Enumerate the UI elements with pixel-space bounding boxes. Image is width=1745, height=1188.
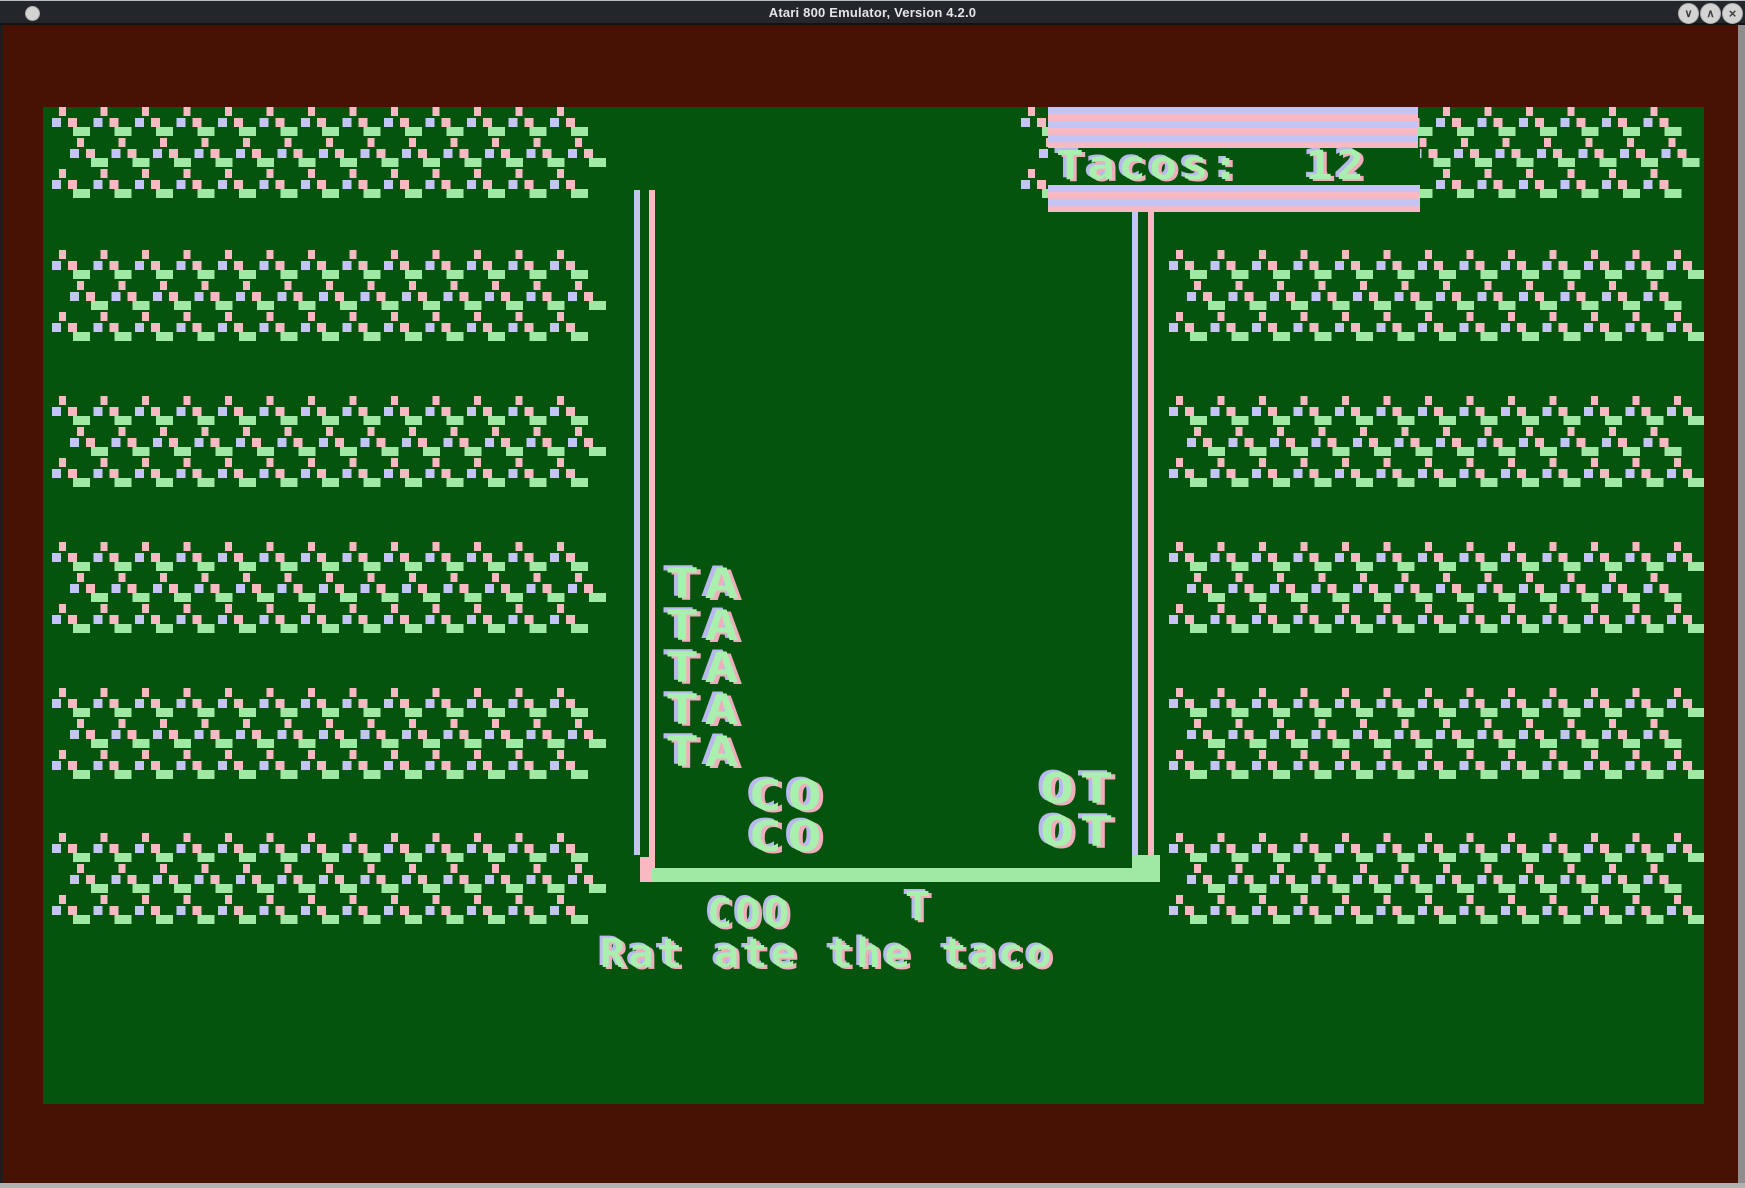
pattern-square	[1185, 699, 1194, 708]
pattern-square	[1203, 584, 1212, 593]
falling-letters: COO	[707, 893, 792, 935]
pattern-square	[1037, 180, 1046, 189]
pattern-square	[70, 292, 79, 301]
pattern-square	[73, 127, 90, 136]
pattern-square	[1176, 833, 1183, 842]
pattern-square	[1190, 562, 1207, 571]
emulator-window: Atari 800 Emulator, Version 4.2.0 ∨ ∧ × …	[0, 0, 1745, 1188]
pattern-square	[1021, 118, 1030, 127]
score-stripe-bottom	[1048, 185, 1420, 212]
piece-ta-2: TA	[665, 607, 744, 645]
pattern-square	[59, 458, 66, 467]
pattern-square	[1169, 407, 1178, 416]
pattern-square	[1176, 396, 1183, 405]
pattern-square	[1176, 250, 1183, 259]
pattern-square	[59, 250, 66, 259]
pattern-square	[70, 149, 79, 158]
pattern-square	[52, 844, 61, 853]
pattern-square	[1169, 761, 1178, 770]
pattern-square	[1185, 323, 1194, 332]
pattern-square	[1176, 895, 1183, 904]
pattern-square	[52, 615, 61, 624]
pattern-square	[1169, 906, 1178, 915]
piece-co-1: CO	[748, 777, 827, 815]
pattern-square	[86, 149, 95, 158]
pattern-square	[1169, 615, 1178, 624]
minimize-button[interactable]: ∨	[1678, 3, 1699, 24]
piece-ta-5: TA	[665, 733, 744, 771]
piece-ta-4: TA	[665, 691, 744, 729]
pattern-square	[52, 906, 61, 915]
pattern-square	[73, 624, 90, 633]
pattern-square	[70, 875, 79, 884]
pattern-square	[73, 270, 90, 279]
playfield-wall-right-lavender	[1132, 190, 1138, 855]
pattern-square	[73, 708, 90, 717]
pattern-square	[1185, 761, 1194, 770]
pattern-square	[52, 553, 61, 562]
pattern-square	[1203, 292, 1212, 301]
pattern-square	[91, 301, 108, 310]
pattern-square	[68, 615, 77, 624]
pattern-square	[1190, 708, 1207, 717]
pattern-square	[1176, 750, 1183, 759]
emulator-screen[interactable]: Tacos: 12 TA TA TA TA TA CO CO OT OT COO…	[43, 107, 1704, 1104]
window-edge-left	[0, 25, 3, 1188]
pattern-square	[1169, 323, 1178, 332]
pattern-square	[59, 604, 66, 613]
pattern-square	[52, 323, 61, 332]
window-title: Atari 800 Emulator, Version 4.2.0	[0, 5, 1745, 20]
pattern-square	[77, 427, 84, 436]
pattern-square	[68, 323, 77, 332]
pattern-square	[1039, 149, 1048, 158]
falling-single-letter: T	[905, 886, 933, 928]
pattern-square	[91, 593, 108, 602]
pattern-square	[68, 844, 77, 853]
pattern-square	[1208, 884, 1225, 893]
pattern-square	[59, 833, 66, 842]
score-row: Tacos: 12	[1048, 148, 1420, 185]
piece-ta-3: TA	[665, 649, 744, 687]
pattern-square	[52, 699, 61, 708]
pattern-square	[91, 158, 108, 167]
pattern-square	[1185, 469, 1194, 478]
pattern-square	[1208, 593, 1225, 602]
pattern-square	[1187, 730, 1196, 739]
pattern-square	[73, 416, 90, 425]
pattern-square	[73, 332, 90, 341]
pattern-square	[1208, 301, 1225, 310]
pattern-square	[1190, 416, 1207, 425]
piece-ta-1: TA	[665, 565, 744, 603]
playfield-wall-left-lavender	[634, 190, 640, 855]
pattern-square	[68, 469, 77, 478]
pattern-square	[73, 853, 90, 862]
piece-ot-2: OT	[1040, 813, 1119, 851]
pattern-square	[77, 281, 84, 290]
pattern-square	[68, 699, 77, 708]
pattern-square	[73, 189, 90, 198]
pattern-square	[1169, 469, 1178, 478]
pattern-square	[68, 407, 77, 416]
playfield-floor-nub	[640, 857, 652, 882]
pattern-square	[91, 447, 108, 456]
pattern-square	[86, 730, 95, 739]
pattern-square	[52, 761, 61, 770]
playfield-wall-left-pink	[649, 190, 655, 868]
pattern-square	[1187, 438, 1196, 447]
playfield-floor	[650, 868, 1160, 882]
pattern-square	[68, 553, 77, 562]
pattern-square	[1194, 427, 1201, 436]
pattern-square	[86, 875, 95, 884]
pattern-square	[1187, 584, 1196, 593]
score-text: Tacos: 12	[1056, 148, 1367, 185]
pattern-square	[1203, 730, 1212, 739]
pattern-square	[73, 478, 90, 487]
pattern-square	[59, 542, 66, 551]
pattern-square	[52, 180, 61, 189]
pattern-square	[1203, 438, 1212, 447]
chevron-down-icon: ∨	[1684, 7, 1692, 20]
pattern-square	[1169, 553, 1178, 562]
chevron-up-icon: ∧	[1706, 7, 1714, 20]
pattern-square	[1028, 107, 1035, 116]
pattern-square	[1194, 573, 1201, 582]
pattern-square	[68, 180, 77, 189]
pattern-square	[52, 407, 61, 416]
pattern-square	[1185, 553, 1194, 562]
pattern-square	[1194, 864, 1201, 873]
pattern-square	[1176, 312, 1183, 321]
pattern-square	[1185, 407, 1194, 416]
pattern-square	[1028, 169, 1035, 178]
pattern-square	[1190, 478, 1207, 487]
pattern-square	[77, 573, 84, 582]
score-stripe-top	[1048, 107, 1418, 148]
pattern-square	[68, 761, 77, 770]
pattern-square	[70, 730, 79, 739]
pattern-square	[1169, 844, 1178, 853]
pattern-square	[59, 396, 66, 405]
pattern-square	[77, 719, 84, 728]
piece-co-2: CO	[748, 818, 827, 856]
pattern-square	[1190, 770, 1207, 779]
pattern-square	[1203, 875, 1212, 884]
pattern-square	[1190, 624, 1207, 633]
pattern-square	[1190, 853, 1207, 862]
pattern-square	[73, 915, 90, 924]
pattern-square	[1185, 844, 1194, 853]
pattern-square	[1169, 699, 1178, 708]
pattern-square	[70, 584, 79, 593]
titlebar[interactable]: Atari 800 Emulator, Version 4.2.0 ∨ ∧ ×	[0, 0, 1745, 25]
pattern-square	[86, 584, 95, 593]
pattern-square	[73, 562, 90, 571]
pattern-square	[86, 292, 95, 301]
pattern-square	[1187, 875, 1196, 884]
pattern-square	[1037, 118, 1046, 127]
pattern-square	[1185, 261, 1194, 270]
pattern-square	[1208, 447, 1225, 456]
pattern-square	[59, 169, 66, 178]
piece-ot-1: OT	[1040, 770, 1119, 808]
pattern-square	[77, 864, 84, 873]
pattern-square	[1194, 281, 1201, 290]
pattern-square	[59, 107, 66, 116]
pattern-square	[1176, 604, 1183, 613]
pattern-square	[59, 895, 66, 904]
pattern-square	[91, 884, 108, 893]
window-edge-right[interactable]	[1738, 25, 1745, 1188]
status-message: Rat ate the taco	[600, 933, 1055, 975]
pattern-square	[73, 770, 90, 779]
pattern-square	[59, 688, 66, 697]
pattern-square	[1185, 906, 1194, 915]
pattern-square	[1185, 615, 1194, 624]
pattern-square	[1176, 458, 1183, 467]
pattern-square	[1190, 915, 1207, 924]
pattern-square	[52, 261, 61, 270]
close-icon: ×	[1729, 6, 1737, 21]
pattern-square	[68, 261, 77, 270]
pattern-square	[1194, 719, 1201, 728]
pattern-square	[70, 438, 79, 447]
pattern-square	[52, 469, 61, 478]
playfield-floor-elbow	[1132, 855, 1160, 868]
pattern-square	[68, 118, 77, 127]
playfield-wall-right-pink	[1148, 190, 1154, 868]
window-edge-bottom[interactable]	[0, 1183, 1745, 1188]
pattern-square	[59, 750, 66, 759]
pattern-square	[1176, 688, 1183, 697]
pattern-square	[1021, 180, 1030, 189]
pattern-square	[77, 138, 84, 147]
pattern-square	[91, 739, 108, 748]
pattern-square	[1169, 261, 1178, 270]
pattern-square	[1190, 270, 1207, 279]
pattern-square	[1190, 332, 1207, 341]
close-button[interactable]: ×	[1722, 3, 1743, 24]
pattern-square	[1208, 739, 1225, 748]
pattern-square	[59, 312, 66, 321]
pattern-square	[86, 438, 95, 447]
pattern-square	[1187, 292, 1196, 301]
pattern-square	[1176, 542, 1183, 551]
pattern-square	[68, 906, 77, 915]
pattern-square	[52, 118, 61, 127]
maximize-button[interactable]: ∧	[1700, 3, 1721, 24]
